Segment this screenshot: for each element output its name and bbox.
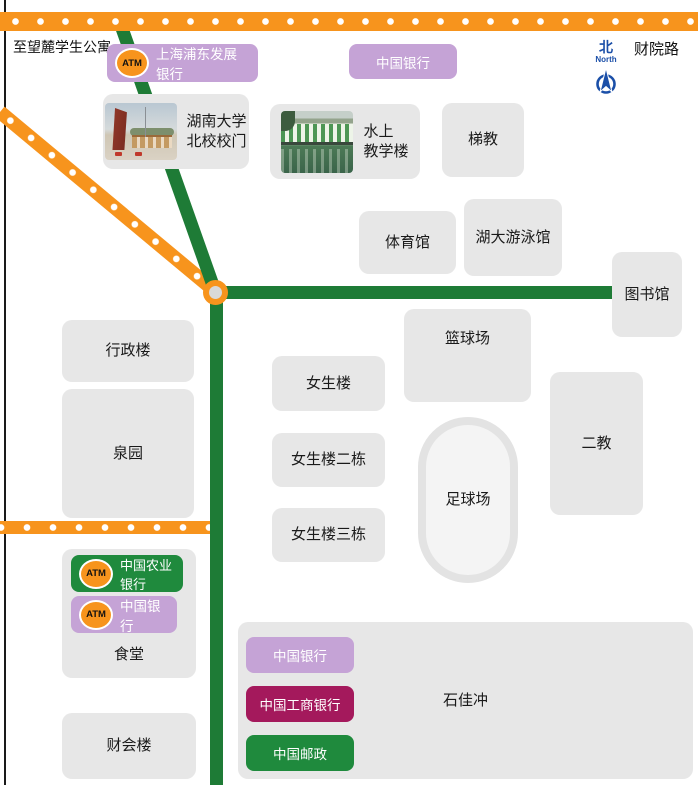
building-finance-label: 财会楼 — [106, 736, 151, 756]
building-gate-label-line1: 湖南大学 — [186, 112, 246, 132]
gate-photo-car — [115, 152, 122, 156]
water-teaching-photo — [281, 111, 353, 173]
building-finance: 财会楼 — [62, 713, 196, 779]
atm-icon: ATM — [79, 559, 113, 589]
road-east-green — [216, 286, 612, 299]
bank-pill-boc-shijiachong: 中国银行 — [246, 637, 354, 673]
building-girls-dorm-2-label: 女生楼二栋 — [291, 450, 366, 470]
bank-pill-abc: ATM 中国农业银行 — [71, 555, 183, 592]
bank-pill-boc-canteen-label: 中国银行 — [120, 595, 169, 635]
building-girls-dorm-1: 女生楼 — [272, 356, 385, 411]
compass: 北 North — [586, 40, 626, 100]
gate-photo-pole — [145, 107, 146, 137]
building-girls-dorm-3-label: 女生楼三栋 — [291, 525, 366, 545]
compass-icon — [593, 67, 619, 100]
building-second-teaching-label: 二教 — [581, 434, 611, 454]
road-south-green — [210, 290, 223, 785]
atm-icon: ATM — [115, 48, 149, 78]
label-caiyuan-road: 财院路 — [634, 38, 679, 59]
water-teaching-line2: 教学楼 — [363, 142, 408, 162]
building-admin: 行政楼 — [62, 320, 194, 382]
gate-photo-monument — [112, 108, 129, 150]
building-quanyuan-label: 泉园 — [113, 444, 143, 464]
water-teaching-line1: 水上 — [363, 122, 393, 142]
bank-pill-spdb-label: 上海浦东发展银行 — [156, 43, 250, 83]
building-girls-dorm-1-label: 女生楼 — [306, 374, 351, 394]
bank-pill-icbc-label: 中国工商银行 — [260, 694, 341, 714]
campus-map: 至望麓学生公寓 财院路 北 North ATM 上海浦东发展银行 中国银行 湖南 — [0, 0, 698, 785]
building-canteen-label: 食堂 — [114, 645, 144, 665]
area-shijiachong-label: 石佳冲 — [443, 691, 488, 711]
building-second-teaching: 二教 — [550, 372, 643, 515]
building-library-label: 图书馆 — [624, 285, 669, 305]
building-gate: 湖南大学 北校校门 — [103, 94, 249, 169]
building-admin-label: 行政楼 — [105, 341, 150, 361]
label-wanglu-apartments: 至望麓学生公寓 — [13, 37, 111, 57]
bank-pill-abc-label: 中国农业银行 — [120, 555, 175, 593]
compass-north-zh: 北 — [599, 40, 613, 55]
water-photo-reflection — [281, 149, 353, 173]
building-gate-label-line2: 北校校门 — [186, 132, 246, 152]
building-lecture-hall: 梯教 — [442, 103, 524, 177]
bank-pill-spdb: ATM 上海浦东发展银行 — [107, 44, 258, 82]
building-water-teaching-label: 水上 教学楼 — [363, 122, 408, 161]
building-girls-dorm-2: 女生楼二栋 — [272, 433, 385, 487]
building-library: 图书馆 — [612, 252, 682, 337]
road-junction-circle — [203, 280, 228, 305]
bank-pill-china-post-label: 中国邮政 — [273, 743, 327, 763]
bank-pill-boc-north: 中国银行 — [349, 44, 457, 79]
football-field-label: 足球场 — [445, 490, 490, 510]
bank-pill-boc-north-label: 中国银行 — [376, 52, 430, 72]
building-girls-dorm-3: 女生楼三栋 — [272, 508, 385, 562]
bank-pill-boc-shijiachong-label: 中国银行 — [273, 645, 327, 665]
building-lecture-hall-label: 梯教 — [468, 130, 498, 150]
water-photo-eave — [281, 142, 353, 145]
building-gymnasium: 体育馆 — [359, 211, 456, 274]
building-swimming-pool: 湖大游泳馆 — [464, 199, 562, 276]
gate-photo-gatehouse — [132, 135, 172, 148]
bank-pill-china-post: 中国邮政 — [246, 735, 354, 771]
road-west-orange — [0, 521, 222, 534]
building-gate-label: 湖南大学 北校校门 — [186, 112, 246, 151]
road-top-horizontal — [0, 12, 698, 31]
football-field: 足球场 — [418, 417, 518, 583]
building-water-teaching: 水上 教学楼 — [270, 104, 420, 179]
building-quanyuan: 泉园 — [62, 389, 194, 518]
gate-photo — [105, 103, 177, 160]
building-swimming-pool-label: 湖大游泳馆 — [475, 228, 550, 248]
compass-north-en: North — [595, 55, 616, 65]
bank-pill-icbc: 中国工商银行 — [246, 686, 354, 722]
bank-pill-boc-canteen: ATM 中国银行 — [71, 596, 177, 633]
building-gymnasium-label: 体育馆 — [385, 233, 430, 253]
gate-photo-car — [135, 152, 142, 156]
basketball-court-label: 篮球场 — [445, 329, 490, 349]
atm-icon: ATM — [79, 600, 113, 630]
basketball-court: 篮球场 — [404, 309, 531, 402]
